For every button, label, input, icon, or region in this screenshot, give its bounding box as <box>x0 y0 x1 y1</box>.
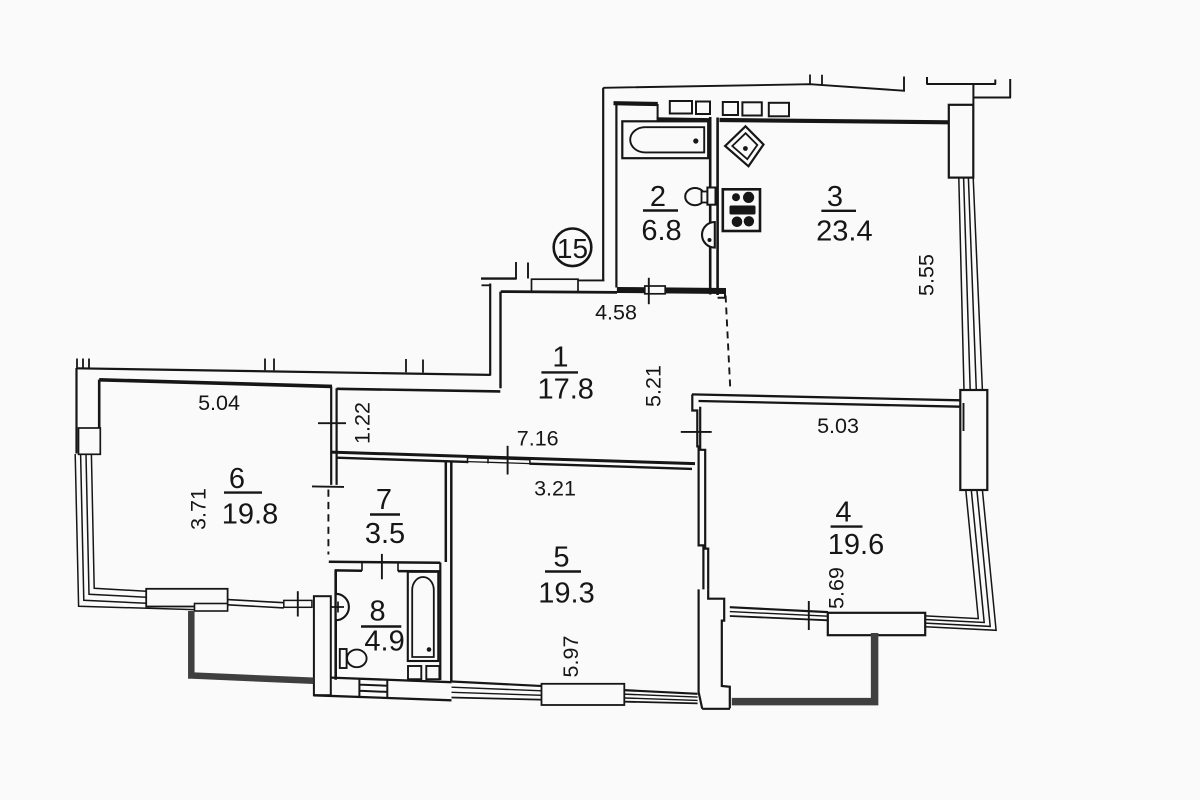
svg-text:17.8: 17.8 <box>537 374 593 406</box>
svg-text:7: 7 <box>376 484 392 516</box>
svg-text:5.04: 5.04 <box>198 391 240 415</box>
svg-text:8: 8 <box>370 596 386 628</box>
svg-text:3.5: 3.5 <box>365 518 405 550</box>
svg-text:19.3: 19.3 <box>538 578 594 610</box>
svg-text:5.55: 5.55 <box>915 254 939 296</box>
svg-text:3.21: 3.21 <box>534 477 576 501</box>
svg-text:7.16: 7.16 <box>517 427 559 451</box>
svg-text:15: 15 <box>557 233 588 264</box>
svg-text:6: 6 <box>229 463 245 495</box>
svg-text:23.4: 23.4 <box>816 215 872 247</box>
svg-text:5.21: 5.21 <box>642 365 666 407</box>
svg-text:5.03: 5.03 <box>817 414 859 438</box>
svg-text:4.9: 4.9 <box>364 626 404 658</box>
svg-text:5: 5 <box>553 542 569 574</box>
svg-text:1.22: 1.22 <box>351 402 375 444</box>
svg-text:4.58: 4.58 <box>595 301 637 325</box>
svg-text:5.97: 5.97 <box>559 636 583 678</box>
svg-text:5.69: 5.69 <box>825 567 849 609</box>
svg-text:3.71: 3.71 <box>187 488 211 530</box>
svg-text:19.8: 19.8 <box>222 499 278 531</box>
svg-text:1: 1 <box>552 342 568 374</box>
svg-text:3: 3 <box>827 181 843 213</box>
svg-text:2: 2 <box>650 181 666 213</box>
svg-text:4: 4 <box>835 497 851 529</box>
svg-text:19.6: 19.6 <box>828 529 884 561</box>
svg-text:6.8: 6.8 <box>641 215 681 247</box>
